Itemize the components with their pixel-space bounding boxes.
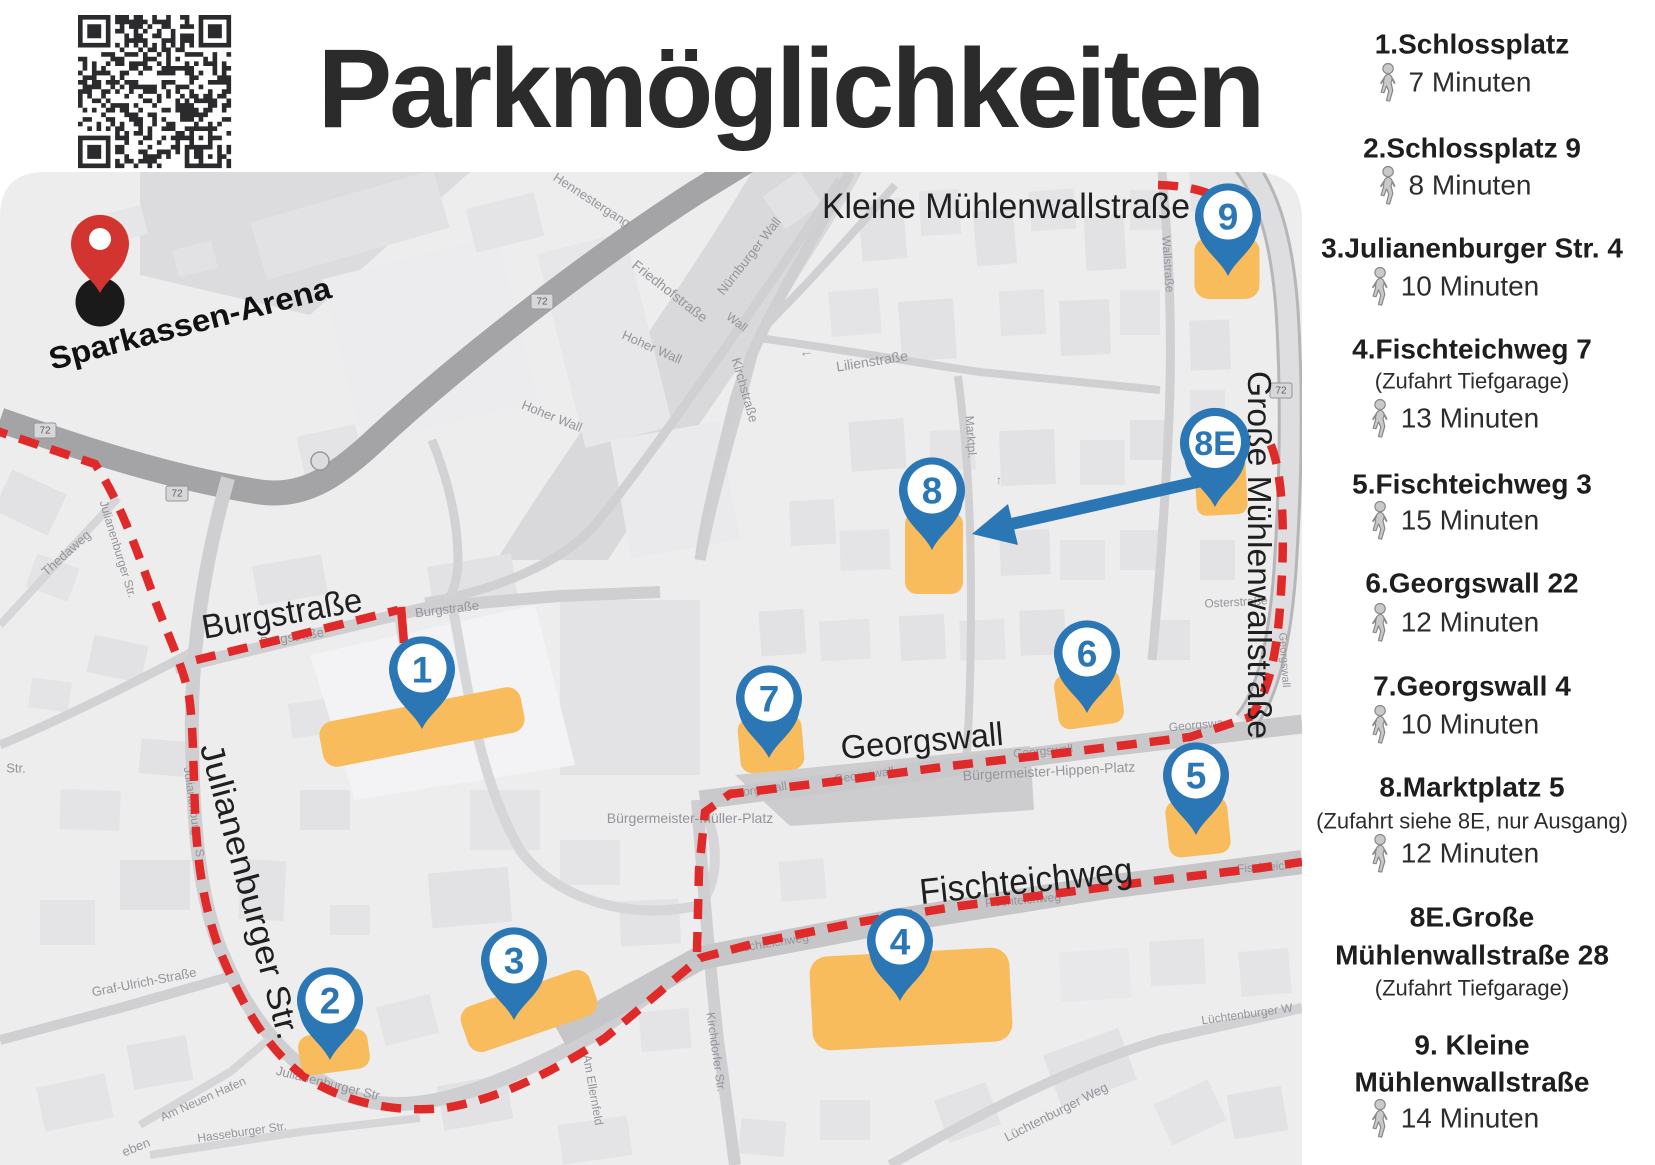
svg-text:15 Minuten: 15 Minuten (1401, 505, 1540, 536)
svg-text:10 Minuten: 10 Minuten (1401, 709, 1540, 740)
svg-text:Parkmöglichkeiten: Parkmöglichkeiten (318, 26, 1263, 151)
svg-text:Große Mühlenwallstraße: Große Mühlenwallstraße (1241, 371, 1278, 739)
svg-text:8E: 8E (1194, 425, 1236, 463)
svg-text:Kleine Mühlenwallstraße: Kleine Mühlenwallstraße (822, 187, 1190, 226)
svg-text:(Zufahrt siehe 8E, nur Ausgang: (Zufahrt siehe 8E, nur Ausgang) (1316, 809, 1628, 834)
svg-text:5: 5 (1186, 756, 1207, 797)
svg-text:1: 1 (412, 650, 433, 691)
svg-text:8E.Große: 8E.Große (1410, 902, 1534, 933)
svg-text:4.Fischteichweg 7: 4.Fischteichweg 7 (1352, 334, 1592, 365)
svg-text:Mühlenwallstraße: Mühlenwallstraße (1355, 1067, 1590, 1098)
svg-text:←: ← (798, 342, 814, 360)
svg-text:Str.: Str. (6, 761, 26, 776)
svg-text:12 Minuten: 12 Minuten (1401, 607, 1540, 638)
svg-text:Mühlenwallstraße 28: Mühlenwallstraße 28 (1335, 940, 1609, 971)
svg-text:3.Julianenburger Str. 4: 3.Julianenburger Str. 4 (1321, 233, 1623, 264)
svg-text:8.Marktplatz 5: 8.Marktplatz 5 (1379, 772, 1564, 803)
svg-text:6: 6 (1077, 634, 1098, 675)
svg-text:72: 72 (536, 297, 548, 308)
svg-text:Marktpl.: Marktpl. (963, 415, 980, 459)
svg-text:(Zufahrt Tiefgarage): (Zufahrt Tiefgarage) (1375, 976, 1569, 1001)
svg-text:2.Schlossplatz 9: 2.Schlossplatz 9 (1363, 133, 1581, 164)
svg-text:14 Minuten: 14 Minuten (1401, 1103, 1540, 1134)
svg-text:6.Georgswall 22: 6.Georgswall 22 (1365, 568, 1578, 599)
svg-text:9. Kleine: 9. Kleine (1414, 1030, 1529, 1061)
svg-text:8 Minuten: 8 Minuten (1409, 170, 1532, 201)
svg-text:72: 72 (39, 426, 51, 437)
svg-text:72: 72 (171, 489, 183, 500)
svg-text:7.Georgswall 4: 7.Georgswall 4 (1373, 671, 1571, 702)
svg-text:1.Schlossplatz: 1.Schlossplatz (1375, 29, 1570, 60)
svg-text:8: 8 (922, 471, 943, 512)
svg-text:7 Minuten: 7 Minuten (1409, 67, 1532, 98)
svg-text:12 Minuten: 12 Minuten (1401, 838, 1540, 869)
svg-text:(Zufahrt Tiefgarage): (Zufahrt Tiefgarage) (1375, 369, 1569, 394)
svg-text:10 Minuten: 10 Minuten (1401, 271, 1540, 302)
svg-text:Bürgermeister-Müller-Platz: Bürgermeister-Müller-Platz (607, 810, 773, 826)
svg-text:7: 7 (759, 679, 780, 720)
svg-text:4: 4 (890, 922, 911, 963)
svg-text:2: 2 (320, 981, 341, 1022)
svg-text:3: 3 (504, 941, 525, 982)
svg-text:9: 9 (1218, 197, 1239, 238)
svg-text:13 Minuten: 13 Minuten (1401, 403, 1540, 434)
svg-text:↑: ↑ (996, 473, 1002, 487)
svg-text:5.Fischteichweg 3: 5.Fischteichweg 3 (1352, 469, 1592, 500)
